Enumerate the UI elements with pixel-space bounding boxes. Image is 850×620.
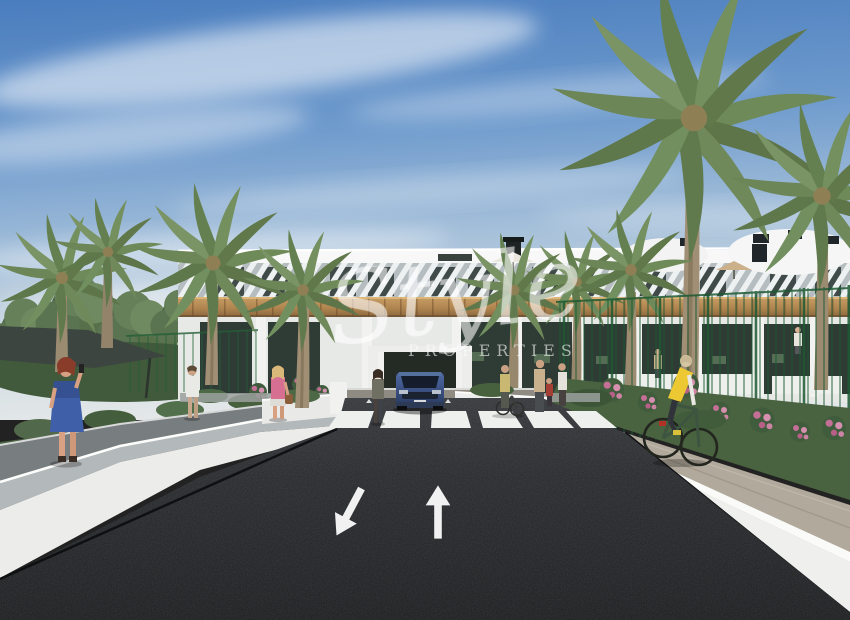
scene [0,0,850,620]
render-image: Style PROPERTIES [0,0,850,620]
chimney [752,244,767,262]
terrace-person [794,327,802,354]
car [393,372,447,415]
bike-rear-light [659,421,666,426]
roof-vent [438,254,472,261]
